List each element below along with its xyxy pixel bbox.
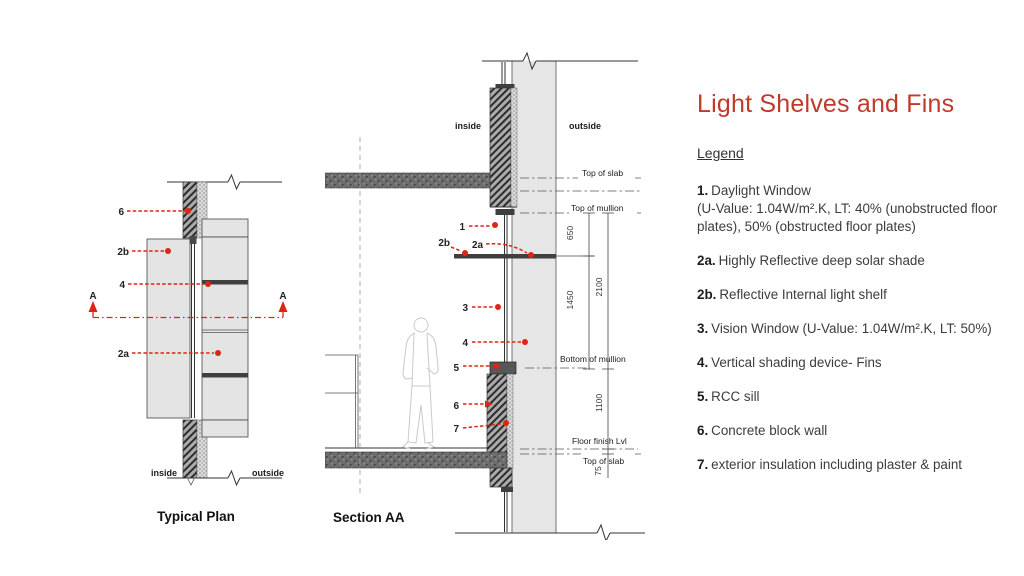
level-top-of-mullion: Top of mullion — [571, 203, 624, 213]
page-title: Light Shelves and Fins — [697, 90, 1017, 119]
level-bottom-of-mullion: Bottom of mullion — [560, 354, 626, 364]
section-marker-a-right: A — [279, 291, 286, 302]
legend-item-text: exterior insulation including plaster & … — [711, 457, 962, 472]
legend-item-text: RCC sill — [711, 389, 759, 404]
section-callout-5-label: 5 — [453, 363, 459, 374]
plan-callout-6-label: 6 — [118, 207, 124, 218]
section-exterior-fin-band — [512, 61, 556, 533]
plan-mullion-anchor — [190, 236, 197, 244]
section-arrow-left — [89, 301, 98, 312]
dim-1100: 1100 — [594, 394, 604, 413]
legend-item-text: Concrete block wall — [711, 423, 827, 438]
section-lower-glazing — [505, 492, 508, 532]
legend-item-3: 3.Vision Window (U-Value: 1.04W/m².K, LT… — [697, 320, 1017, 338]
plan-callout-4-label: 4 — [119, 280, 125, 291]
legend-item-text: Daylight Window — [711, 183, 811, 198]
plan-callout-2a-dot — [215, 350, 221, 356]
section-aa-drawing: Top of slab Top of mullion Bottom of mul… — [325, 30, 665, 540]
plan-fin-bar-2 — [202, 373, 248, 378]
plan-callout-2b-label: 2b — [117, 247, 129, 258]
section-callout-2b: 2b — [438, 238, 468, 256]
plan-callout-6: 6 — [118, 207, 191, 218]
legend-item-continuation: (U-Value: 1.04W/m².K, LT: 40% (unobstruc… — [697, 200, 1017, 236]
legend-item-text: Vertical shading device- Fins — [711, 355, 881, 370]
legend-item-2b: 2b.Reflective Internal light shelf — [697, 286, 1017, 304]
dim-1450: 1450 — [565, 290, 575, 309]
legend-item-number: 1. — [697, 183, 708, 198]
plan-callout-4-dot — [205, 281, 211, 287]
section-callout-1: 1 — [459, 222, 498, 233]
section-callout-6-label: 6 — [453, 401, 459, 412]
section-upper-mullion-cap — [496, 84, 515, 88]
legend-heading: Legend — [697, 145, 1017, 161]
plan-callout-2b-dot — [165, 248, 171, 254]
legend-item-2a: 2a.Highly Reflective deep solar shade — [697, 252, 1017, 270]
legend-item-7: 7.exterior insulation including plaster … — [697, 456, 1017, 474]
plan-bottom-arrow-mark — [188, 478, 195, 485]
legend-item-6: 6.Concrete block wall — [697, 422, 1017, 440]
legend-item-5: 5.RCC sill — [697, 388, 1017, 406]
section-caption: Section AA — [333, 510, 405, 525]
section-callout-2b-label: 2b — [438, 238, 450, 249]
plan-caption: Typical Plan — [157, 509, 235, 524]
legend-items: 1.Daylight Window (U-Value: 1.04W/m².K, … — [697, 182, 1017, 474]
legend-item-number: 4. — [697, 355, 708, 370]
plan-inside-label: inside — [151, 468, 177, 478]
legend-item-1: 1.Daylight Window (U-Value: 1.04W/m².K, … — [697, 182, 1017, 236]
plan-outside-label: outside — [252, 468, 284, 478]
section-upper-wall-hatch — [490, 88, 511, 207]
section-callout-3-label: 3 — [462, 303, 468, 314]
level-top-of-slab-lower: Top of slab — [583, 456, 624, 466]
legend-item-number: 2a. — [697, 253, 716, 268]
section-lower-slab — [325, 452, 507, 468]
section-callout-1-label: 1 — [459, 222, 465, 233]
dim-2100: 2100 — [594, 277, 604, 296]
plan-outer-strip-bottom — [202, 420, 248, 437]
plan-callout-2a-label: 2a — [118, 349, 130, 360]
plan-callout-6-dot — [185, 208, 191, 214]
legend-item-number: 6. — [697, 423, 708, 438]
legend-item-text: Reflective Internal light shelf — [719, 287, 886, 302]
typical-plan-drawing: A A 6 2b 4 2a inside outside Typ — [55, 160, 315, 540]
section-window-head — [496, 209, 515, 215]
section-glazing-lines — [505, 215, 508, 362]
section-lower-wall-hatch — [487, 374, 507, 452]
plan-outer-strip-top — [202, 219, 248, 237]
dim-650: 650 — [565, 226, 575, 240]
section-outside-label: outside — [569, 121, 601, 131]
legend-item-text: Vision Window (U-Value: 1.04W/m².K, LT: … — [711, 321, 992, 336]
section-callout-2a-label: 2a — [472, 240, 484, 251]
section-upper-mullion — [502, 62, 505, 84]
level-floor-finish: Floor finish Lvl — [572, 436, 627, 446]
section-inside-label: inside — [455, 121, 481, 131]
person-figure — [403, 318, 438, 449]
legend-panel: Light Shelves and Fins Legend 1.Daylight… — [697, 90, 1017, 490]
section-upper-insulation — [511, 88, 517, 207]
plan-glazing-lines — [192, 244, 195, 418]
section-lower-window-sill-block — [501, 487, 513, 492]
legend-item-number: 2b. — [697, 287, 716, 302]
plan-internal-light-shelf — [147, 239, 190, 418]
section-arrow-right — [279, 301, 288, 312]
section-callout-4-label: 4 — [462, 338, 468, 349]
dim-75: 75 — [593, 466, 603, 476]
plan-external-shade — [202, 237, 248, 420]
legend-item-number: 5. — [697, 389, 708, 404]
slide-canvas: A A 6 2b 4 2a inside outside Typ — [0, 0, 1024, 576]
plan-bottom-break-symbol — [228, 471, 240, 485]
section-bottom-break-symbol — [597, 525, 610, 540]
section-upper-slab — [325, 173, 490, 188]
legend-item-number: 3. — [697, 321, 708, 336]
section-callout-7-label: 7 — [453, 424, 459, 435]
section-slab-downstand — [490, 468, 512, 487]
legend-item-text: Highly Reflective deep solar shade — [719, 253, 925, 268]
legend-item-4: 4.Vertical shading device- Fins — [697, 354, 1017, 372]
section-furniture — [325, 355, 358, 448]
legend-item-number: 7. — [697, 457, 708, 472]
plan-wall-hatch-bottom — [183, 420, 197, 478]
section-callout-3: 3 — [462, 303, 501, 314]
level-top-of-slab-upper: Top of slab — [582, 168, 623, 178]
plan-top-break-symbol — [228, 175, 240, 189]
section-marker-a-left: A — [89, 291, 96, 302]
